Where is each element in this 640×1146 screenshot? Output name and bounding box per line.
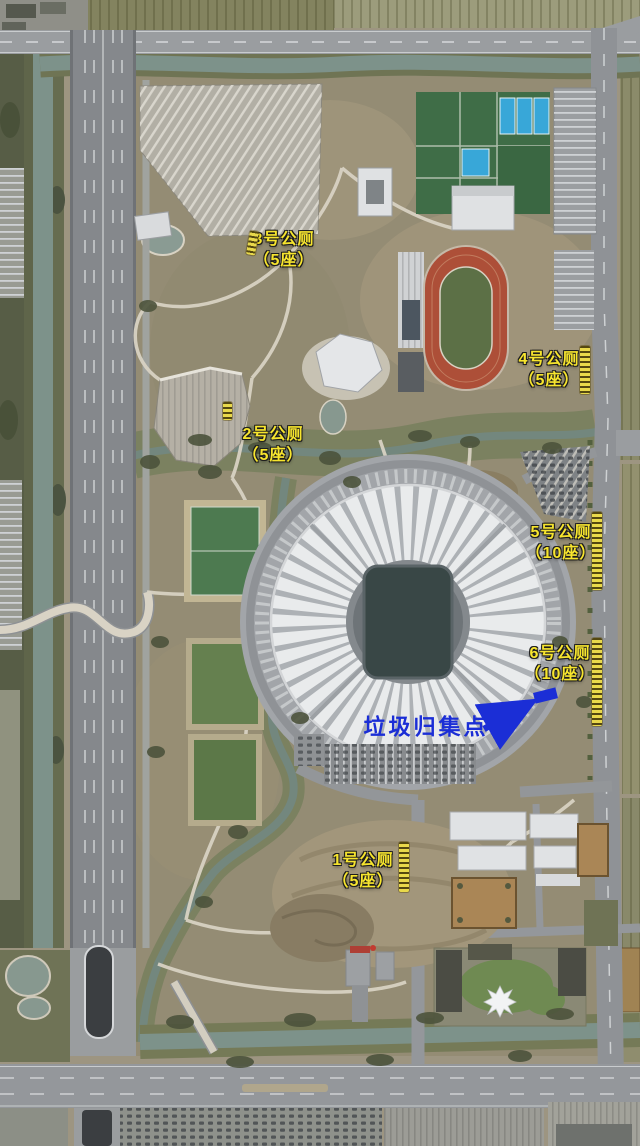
toilet-4-label: 4号公厕（5座） xyxy=(519,349,580,391)
annotation-layer: 3号公厕（5座）2号公厕（5座）4号公厕（5座）5号公厕（10座）6号公厕（10… xyxy=(0,0,640,1146)
toilet-2-label: 2号公厕（5座） xyxy=(243,424,304,466)
toilet-5-label: 5号公厕（10座） xyxy=(526,522,597,564)
road-watermark-strip xyxy=(399,842,409,892)
road-watermark-strip xyxy=(592,638,602,726)
garbage-marker-rect xyxy=(533,687,558,703)
toilet-1-label: 1号公厕（5座） xyxy=(333,850,394,892)
toilet-3-label: 3号公厕（5座） xyxy=(254,229,315,271)
road-watermark-strip xyxy=(223,402,232,420)
toilet-6-label: 6号公厕（10座） xyxy=(525,643,596,685)
satellite-map: 3号公厕（5座）2号公厕（5座）4号公厕（5座）5号公厕（10座）6号公厕（10… xyxy=(0,0,640,1146)
road-watermark-strip xyxy=(580,346,590,394)
garbage-point-annotation xyxy=(0,0,640,1146)
garbage-arrow xyxy=(484,705,527,729)
garbage-point-label: 垃圾归集点 xyxy=(363,717,488,738)
road-watermark-strip xyxy=(592,512,602,590)
